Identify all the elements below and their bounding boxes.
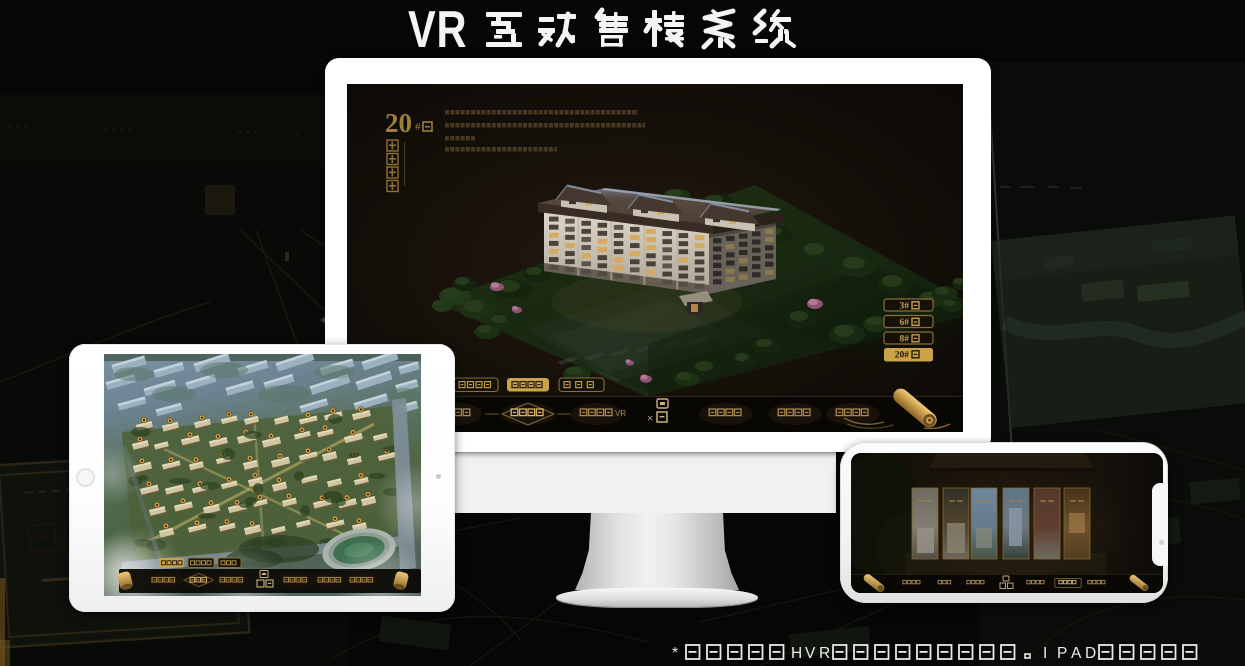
svg-text:A: A xyxy=(1071,645,1082,662)
svg-text:V: V xyxy=(805,645,816,662)
svg-text:H: H xyxy=(791,645,802,662)
svg-text:*: * xyxy=(672,645,678,662)
svg-text:I: I xyxy=(1043,645,1047,662)
svg-text:D: D xyxy=(1085,645,1096,662)
svg-text:P: P xyxy=(1057,645,1067,662)
svg-text:R: R xyxy=(819,645,830,662)
